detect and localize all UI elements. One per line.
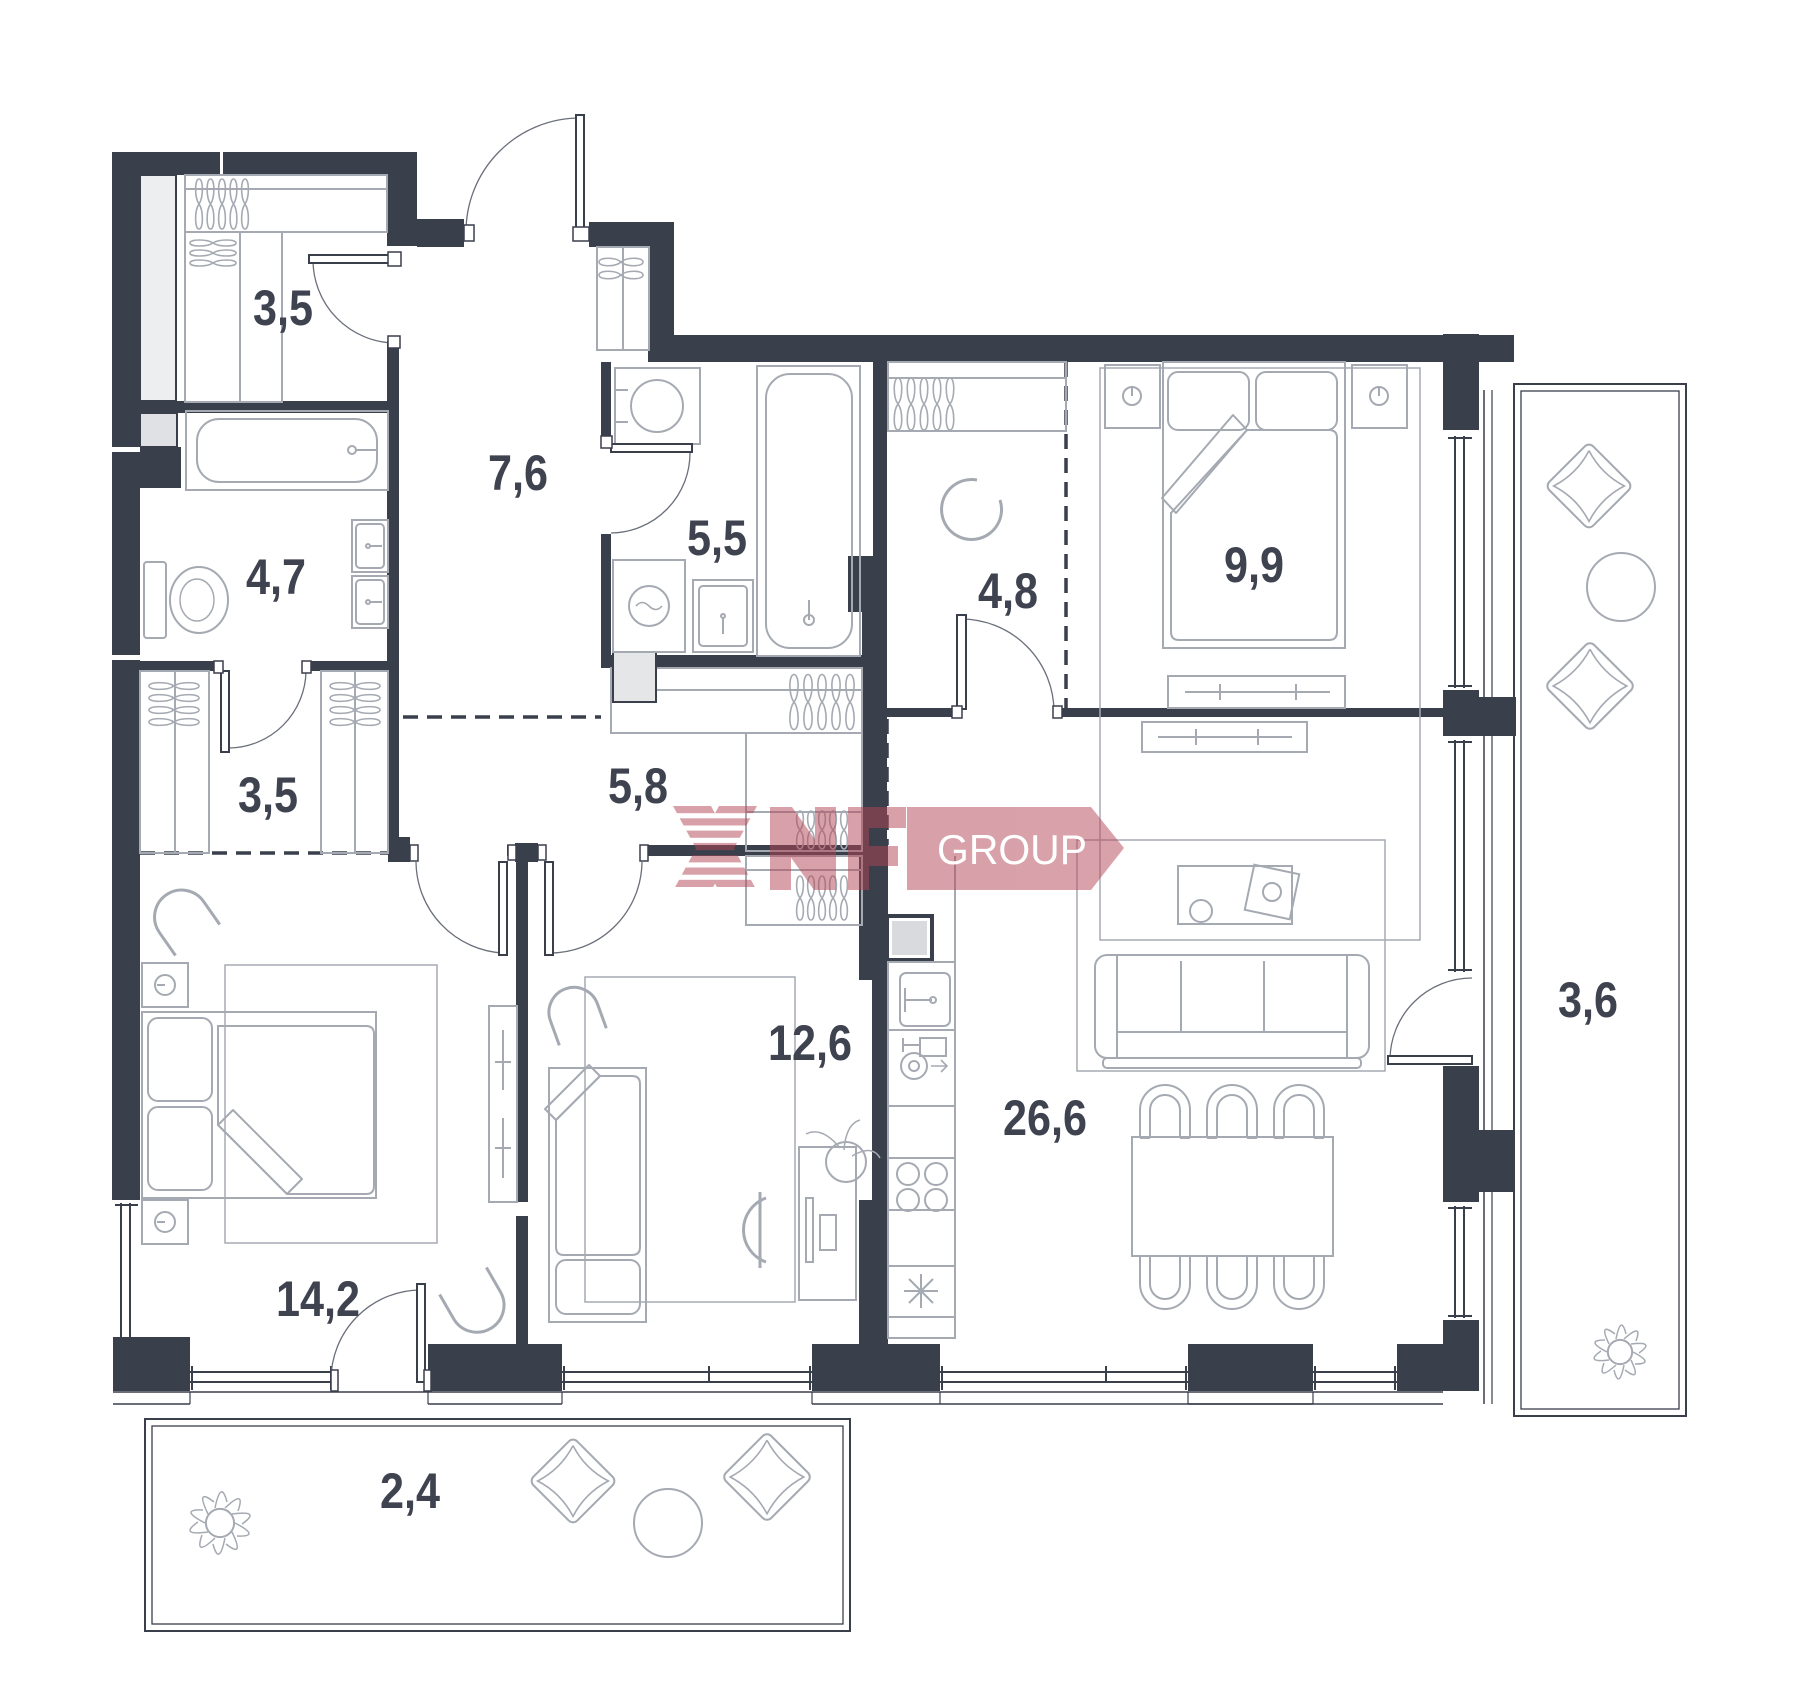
svg-text:GROUP: GROUP (937, 826, 1087, 873)
svg-text:5,5: 5,5 (687, 510, 747, 566)
svg-text:26,6: 26,6 (1003, 1090, 1087, 1146)
svg-text:3,6: 3,6 (1558, 972, 1618, 1028)
svg-text:12,6: 12,6 (768, 1015, 852, 1071)
svg-text:3,5: 3,5 (238, 767, 298, 823)
svg-text:3,5: 3,5 (253, 280, 313, 336)
svg-text:2,4: 2,4 (380, 1463, 440, 1519)
svg-text:5,8: 5,8 (608, 758, 668, 814)
svg-text:7,6: 7,6 (488, 445, 548, 501)
svg-text:4,8: 4,8 (978, 563, 1038, 619)
svg-text:9,9: 9,9 (1224, 537, 1284, 593)
svg-text:4,7: 4,7 (246, 549, 306, 605)
svg-text:14,2: 14,2 (276, 1271, 360, 1327)
